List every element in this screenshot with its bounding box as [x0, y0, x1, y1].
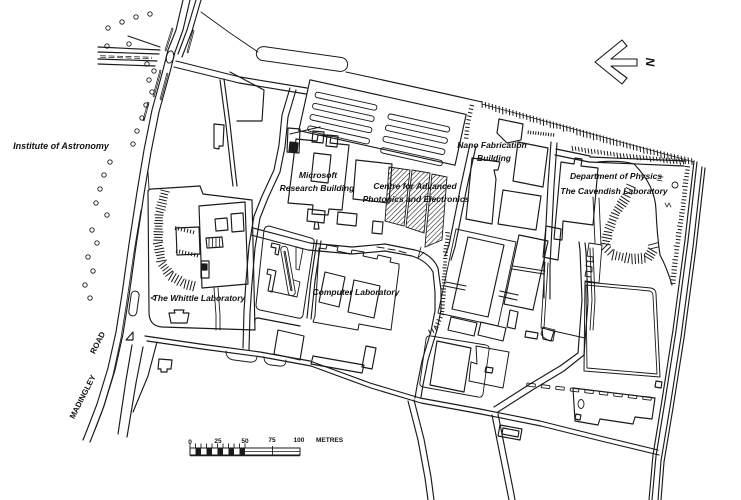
svg-text:The Whittle Laboratory: The Whittle Laboratory	[153, 293, 247, 303]
svg-text:Department of Physics: Department of Physics	[570, 171, 662, 181]
svg-text:ROAD: ROAD	[88, 330, 107, 355]
svg-text:Institute of Astronomy: Institute of Astronomy	[13, 141, 110, 151]
svg-text:N: N	[643, 58, 657, 67]
svg-text:Research Building: Research Building	[280, 183, 355, 193]
svg-text:25: 25	[214, 438, 222, 445]
svg-text:Microsoft: Microsoft	[299, 170, 338, 180]
svg-text:Computer Laboratory: Computer Laboratory	[313, 287, 401, 297]
svg-text:Centre for Advanced: Centre for Advanced	[373, 181, 457, 191]
svg-text:Building: Building	[477, 153, 512, 163]
svg-text:METRES: METRES	[316, 437, 344, 444]
svg-text:Photonics and Electronics: Photonics and Electronics	[363, 194, 470, 204]
svg-text:100: 100	[294, 437, 305, 444]
svg-text:The Cavendish Laboratory: The Cavendish Laboratory	[560, 186, 668, 196]
svg-text:Nano Fabrication: Nano Fabrication	[457, 140, 526, 150]
svg-text:75: 75	[268, 437, 276, 444]
